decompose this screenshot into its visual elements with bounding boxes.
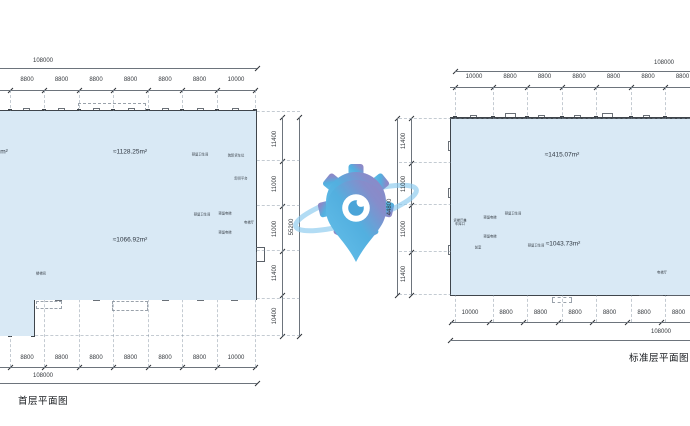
right-plan-top-segment-dims-label: 10000 bbox=[466, 74, 483, 80]
floor-plan-drawing-canvas: ≈1128.25m² ≈1066.92m² m² ≈1415.07m² ≈104… bbox=[0, 0, 690, 426]
room-label-r-ante-room: 前室 bbox=[475, 245, 482, 250]
floor-fill-right-main bbox=[451, 119, 690, 295]
room-label-freight-hall-line2: 车库口 bbox=[453, 223, 466, 227]
left-plan-bottom-segment-dims-label: 8800 bbox=[158, 355, 171, 361]
room-label-truck-bays: 装卸货车位 bbox=[228, 153, 245, 158]
area-label-left-lower: ≈1066.92m² bbox=[113, 237, 148, 244]
room-label-r-reserved-elevator-1: 预留电梯 bbox=[483, 215, 496, 220]
area-label-right-upper: ≈1415.07m² bbox=[545, 152, 580, 159]
left-plan-top-segment-dims-label: 10000 bbox=[228, 77, 245, 83]
left-plan-top-segment-dims-line bbox=[0, 90, 257, 91]
right-plan-left-segment-dims-label: 11400 bbox=[401, 265, 407, 281]
left-plan-top-segment-dims-label: 8800 bbox=[89, 77, 102, 83]
left-plan-top-total-dim-label: 108000 bbox=[33, 58, 53, 64]
floor-fill-left-wing bbox=[0, 300, 34, 336]
right-plan-bottom-segment-dims-label: 8800 bbox=[637, 310, 650, 316]
left-plan-top-segment-dims-label: 8800 bbox=[124, 77, 137, 83]
right-plan-top-segment-dims-label: 8800 bbox=[607, 74, 620, 80]
right-plan-left-segment-dims-label: 11000 bbox=[401, 176, 407, 192]
entrance-canopy bbox=[36, 301, 62, 309]
right-plan-bottom-segment-dims-label: 8800 bbox=[534, 310, 547, 316]
left-plan-right-total-dim-label: 55200 bbox=[289, 218, 295, 235]
room-label-reserved-elevator-1: 预留电梯 bbox=[218, 211, 231, 216]
room-label-elevator-hall: 电梯厅 bbox=[244, 220, 254, 225]
left-plan-bottom-segment-dims-line bbox=[0, 367, 257, 368]
left-plan-bottom-total-dim-line bbox=[0, 383, 257, 384]
area-label-left-upper: ≈1128.25m² bbox=[113, 149, 147, 156]
right-plan-bottom-total-dim-line bbox=[450, 340, 690, 341]
room-label-r-reserved-toilet-lower: 预留卫生间 bbox=[528, 243, 545, 248]
right-plan-top-segment-dims-label: 8800 bbox=[572, 74, 585, 80]
right-plan-top-total-dim-line bbox=[455, 71, 690, 72]
right-plan-top-segment-dims-label: 8800 bbox=[676, 74, 689, 80]
left-plan-bottom-segment-dims-label: 8800 bbox=[20, 355, 33, 361]
room-label-r-reserved-toilet-upper: 预留卫生间 bbox=[505, 211, 522, 216]
left-plan-top-segment-dims-label: 8800 bbox=[55, 77, 68, 83]
left-plan-top-segment-dims-label: 8800 bbox=[20, 77, 33, 83]
room-label-r-reserved-elevator-2: 预留电梯 bbox=[483, 234, 496, 239]
left-plan-bottom-segment-dims-label: 8800 bbox=[124, 355, 137, 361]
left-plan-bottom-segment-dims-label: 10000 bbox=[228, 355, 245, 361]
left-plan-top-segment-dims-label: 8800 bbox=[193, 77, 206, 83]
right-plan-top-segment-dims-label: 8800 bbox=[538, 74, 551, 80]
area-label-left-edge-partial: m² bbox=[0, 149, 8, 156]
left-plan-top-total-dim-line bbox=[0, 68, 257, 69]
area-label-right-lower: ≈1043.73m² bbox=[546, 241, 581, 248]
left-plan-title: 首层平面图 bbox=[18, 393, 68, 407]
room-label-unloading-platform: 卸货平台 bbox=[234, 176, 247, 181]
room-label-stair-core: 楼梯间 bbox=[36, 271, 46, 276]
watermark-gear-location-pin-logo bbox=[280, 152, 440, 282]
right-plan-bottom-segment-dims-label: 8800 bbox=[568, 310, 581, 316]
left-plan-bottom-segment-dims-label: 8800 bbox=[55, 355, 68, 361]
left-plan-right-segment-dims-label: 10400 bbox=[272, 307, 278, 324]
right-plan-top-segment-dims-label: 8800 bbox=[641, 74, 654, 80]
right-plan-bottom-segment-dims-label: 8800 bbox=[603, 310, 616, 316]
right-plan-top-segment-dims-label: 8800 bbox=[503, 74, 516, 80]
entrance-canopy bbox=[112, 301, 148, 311]
room-label-reserved-elevator-2: 预留电梯 bbox=[218, 230, 231, 235]
left-plan-right-segment-dims-label: 11400 bbox=[272, 131, 278, 147]
right-plan-bottom-segment-dims-label: 8800 bbox=[672, 310, 685, 316]
right-plan-bottom-total-dim-label: 108000 bbox=[651, 329, 671, 335]
left-plan-bottom-segment-dims-label: 8800 bbox=[89, 355, 102, 361]
right-plan-title: 标准层平面图 bbox=[629, 350, 689, 364]
left-plan-bottom-total-dim-label: 108000 bbox=[33, 373, 53, 379]
left-plan-right-segment-dims-label: 11400 bbox=[272, 265, 278, 281]
room-label-r-elevator-hall: 电梯厅 bbox=[657, 270, 667, 275]
left-plan-right-segment-dims-label: 11000 bbox=[272, 175, 278, 191]
right-plan-bottom-segment-dims-label: 8800 bbox=[499, 310, 512, 316]
left-plan-right-segment-dims-label: 11000 bbox=[272, 220, 278, 236]
room-label-freight-hall: 货梯厅兼 车库口 bbox=[453, 219, 466, 227]
right-plan-top-segment-dims-line bbox=[450, 87, 690, 88]
right-plan-left-total-dim-label: 44800 bbox=[387, 198, 393, 215]
room-label-reserved-toilet-upper: 预留卫生间 bbox=[192, 152, 209, 157]
right-plan-left-segment-dims-label: 11000 bbox=[401, 220, 407, 236]
right-plan-left-segment-dims-label: 11400 bbox=[401, 132, 407, 148]
left-plan-bottom-segment-dims-label: 8800 bbox=[193, 355, 206, 361]
right-plan-bottom-segment-dims-label: 10000 bbox=[462, 310, 479, 316]
watermark-pin-dot-notch bbox=[357, 198, 366, 207]
room-label-reserved-toilet-lower: 预留卫生间 bbox=[194, 212, 211, 217]
right-plan-bottom-segment-dims-line bbox=[450, 322, 690, 323]
left-plan-top-segment-dims-label: 8800 bbox=[158, 77, 171, 83]
right-plan-top-total-dim-label: 108000 bbox=[654, 60, 674, 66]
